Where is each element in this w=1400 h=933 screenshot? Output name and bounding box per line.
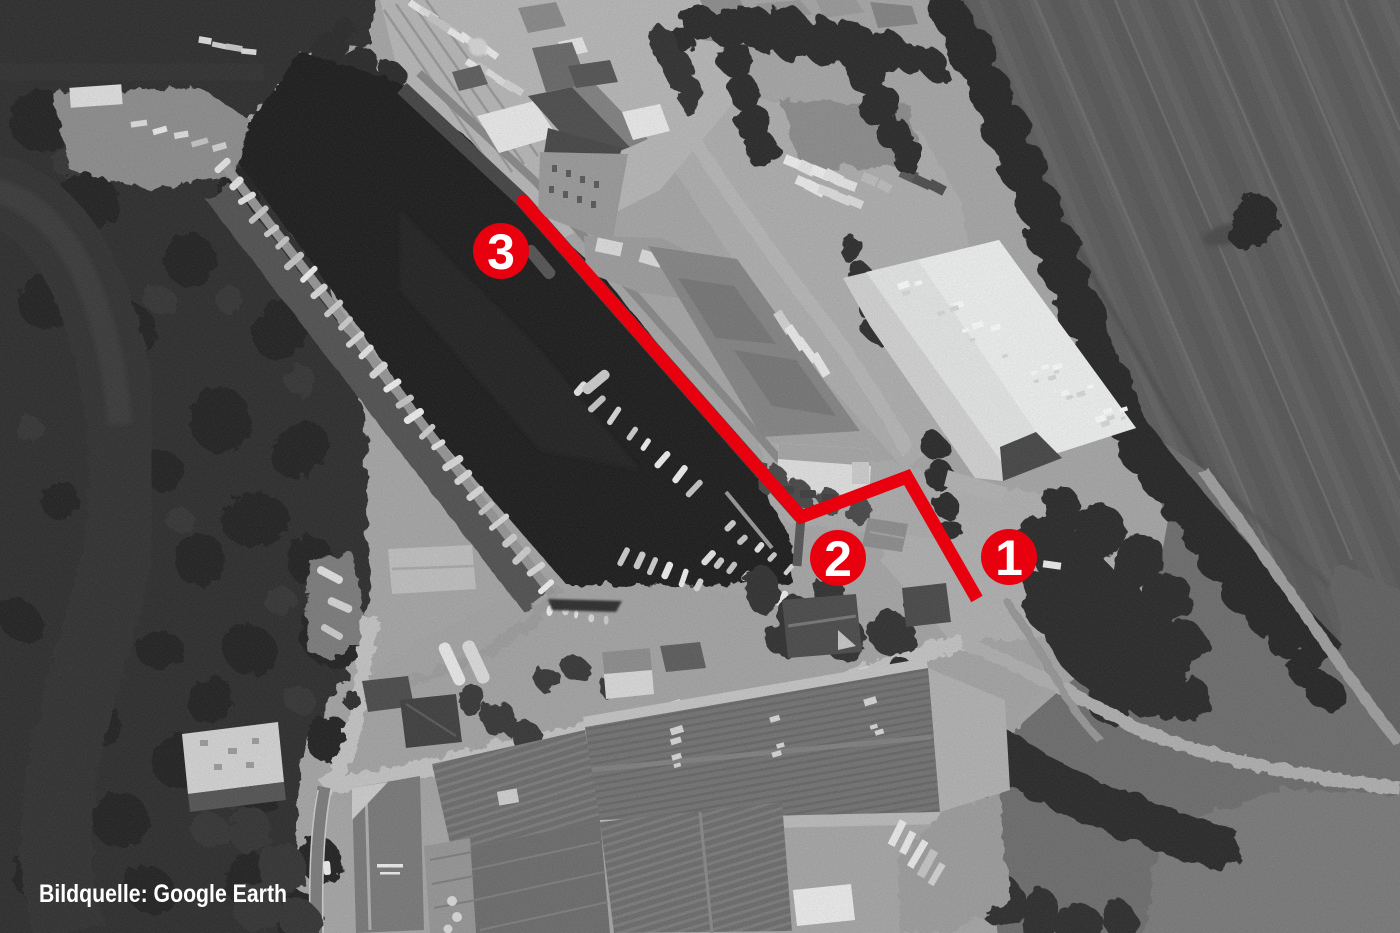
svg-text:1: 1 [995,530,1023,586]
svg-text:2: 2 [824,531,852,587]
svg-text:Bildquelle: Google Earth: Bildquelle: Google Earth [39,880,287,908]
svg-text:3: 3 [487,224,515,280]
